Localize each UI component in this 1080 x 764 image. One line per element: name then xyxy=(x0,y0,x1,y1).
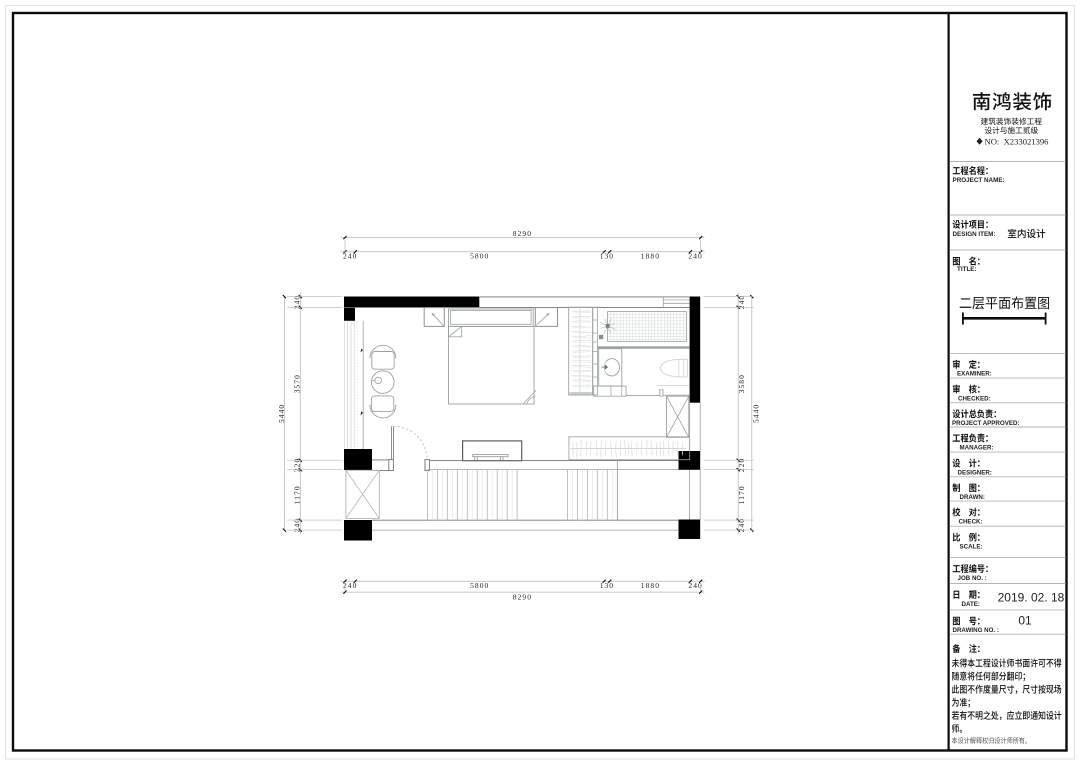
svg-text:1170: 1170 xyxy=(737,485,746,504)
svg-text:01: 01 xyxy=(1018,614,1032,628)
svg-text:1880: 1880 xyxy=(641,581,660,590)
svg-text:220: 220 xyxy=(293,458,302,472)
svg-text:SCALE:: SCALE: xyxy=(960,544,983,551)
svg-text:220: 220 xyxy=(737,458,746,472)
svg-text:CHECK:: CHECK: xyxy=(959,518,983,525)
svg-text:8290: 8290 xyxy=(513,229,532,238)
svg-text:8290: 8290 xyxy=(513,593,532,602)
svg-text:3570: 3570 xyxy=(293,374,302,393)
svg-text:DATE:: DATE: xyxy=(962,601,980,608)
svg-text:DESIGNER:: DESIGNER: xyxy=(958,469,992,476)
svg-text:MANAGER:: MANAGER: xyxy=(960,444,994,451)
svg-text:PROJECT APPROVED:: PROJECT APPROVED: xyxy=(952,420,1020,427)
svg-text:PROJECT NAME:: PROJECT NAME: xyxy=(953,177,1005,184)
svg-text:DESIGN ITEM:: DESIGN ITEM: xyxy=(953,231,996,238)
svg-text:5800: 5800 xyxy=(470,581,489,590)
svg-text:1170: 1170 xyxy=(293,485,302,504)
svg-text:NO: X233021396: NO: X233021396 xyxy=(985,136,1050,146)
svg-text:EXAMINER:: EXAMINER: xyxy=(957,371,992,378)
svg-text:TITLE:: TITLE: xyxy=(957,266,977,273)
svg-text:3580: 3580 xyxy=(737,374,746,393)
svg-text:DRAWN:: DRAWN: xyxy=(960,494,985,501)
svg-text:DRAWING NO. :: DRAWING NO. : xyxy=(953,627,999,634)
svg-text:5800: 5800 xyxy=(470,252,489,261)
svg-text:5440: 5440 xyxy=(752,404,761,423)
svg-text:JOB NO. :: JOB NO. : xyxy=(958,575,987,582)
svg-text:1880: 1880 xyxy=(641,252,660,261)
svg-text:130: 130 xyxy=(600,252,614,261)
svg-text:2019. 02. 18: 2019. 02. 18 xyxy=(998,591,1065,605)
svg-text:130: 130 xyxy=(600,581,614,590)
svg-text:CHECKED:: CHECKED: xyxy=(958,395,991,402)
svg-text:5440: 5440 xyxy=(277,404,286,423)
